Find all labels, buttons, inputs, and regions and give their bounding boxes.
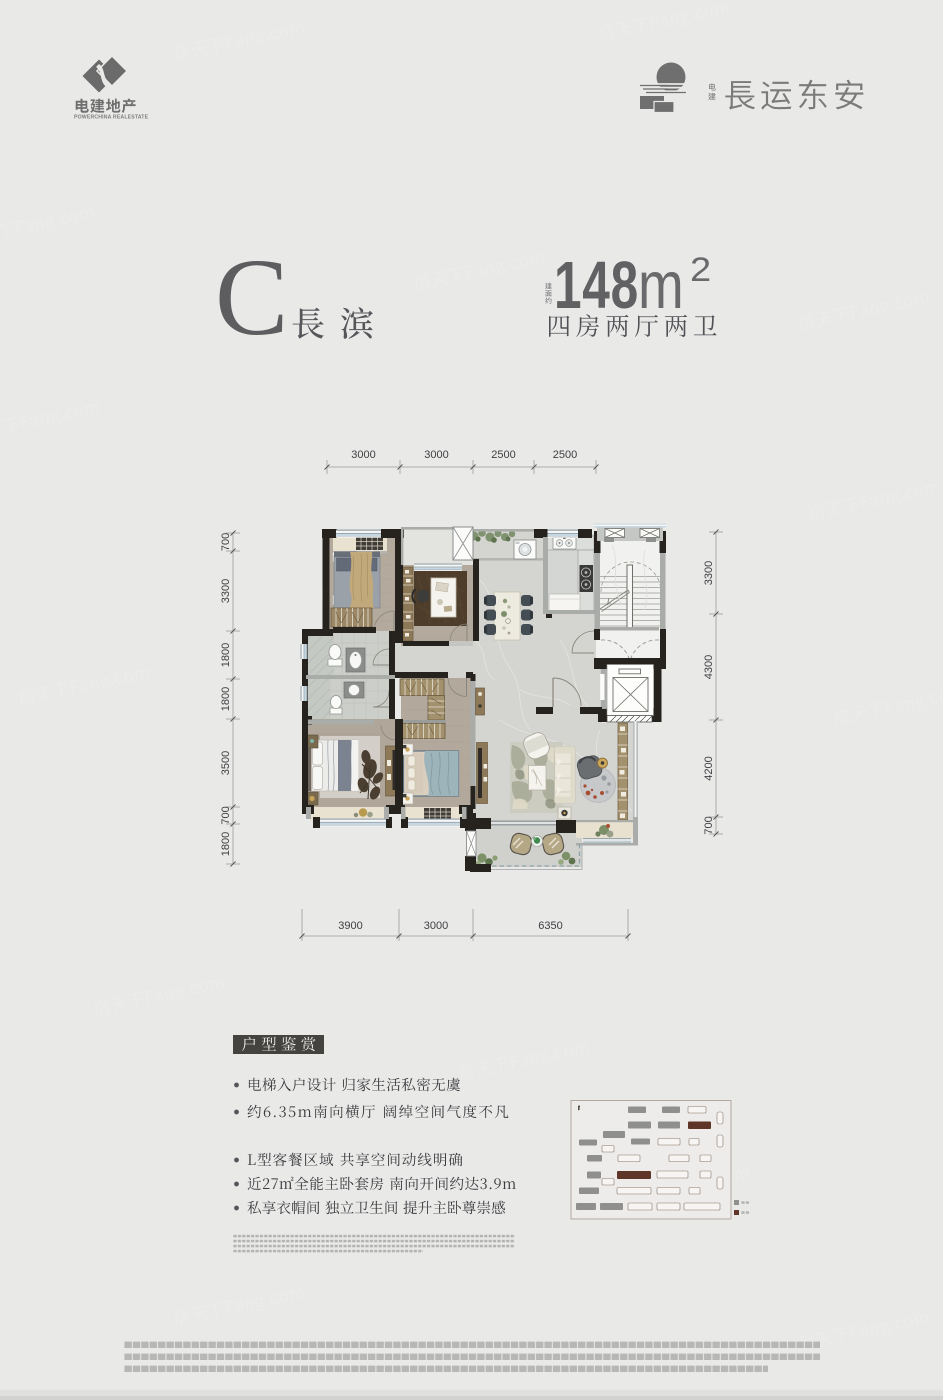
- svg-text:2: 2: [690, 250, 711, 289]
- svg-text:3900: 3900: [338, 920, 362, 932]
- svg-text:700: 700: [703, 816, 715, 834]
- svg-text:2500: 2500: [553, 449, 577, 461]
- svg-text:1800: 1800: [220, 687, 232, 711]
- svg-text:3500: 3500: [220, 751, 232, 775]
- svg-text:700: 700: [220, 806, 232, 824]
- svg-text:3300: 3300: [703, 561, 715, 585]
- svg-text:3000: 3000: [424, 920, 448, 932]
- svg-text:6350: 6350: [538, 920, 562, 932]
- svg-text:2500: 2500: [491, 449, 515, 461]
- svg-text:POWERCHINA REALESTATE: POWERCHINA REALESTATE: [74, 114, 149, 120]
- svg-text:C: C: [215, 236, 288, 358]
- svg-text:4300: 4300: [703, 655, 715, 679]
- svg-text:1800: 1800: [220, 832, 232, 856]
- svg-text:3000: 3000: [351, 449, 375, 461]
- svg-text:1800: 1800: [220, 643, 232, 667]
- svg-text:3000: 3000: [424, 449, 448, 461]
- svg-text:700: 700: [220, 533, 232, 551]
- svg-text:3300: 3300: [220, 579, 232, 603]
- svg-text:m: m: [638, 248, 684, 322]
- svg-text:148: 148: [554, 249, 639, 323]
- svg-text:4200: 4200: [703, 756, 715, 780]
